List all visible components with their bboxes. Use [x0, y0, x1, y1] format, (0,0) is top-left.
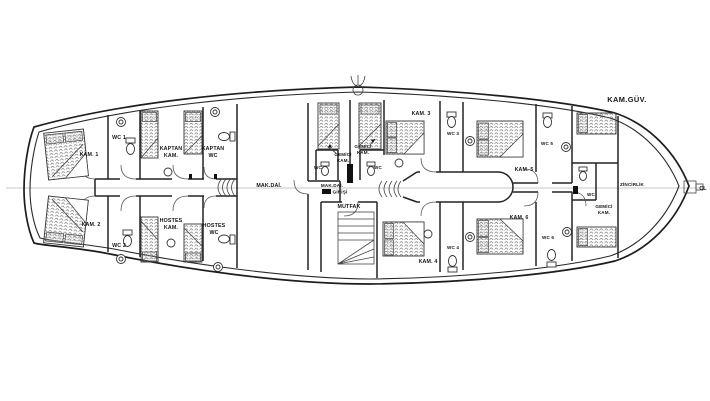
- companionway-steps-mid: [379, 181, 401, 197]
- label-wc6: WC 6: [542, 235, 554, 240]
- label-bow-wc: WC: [587, 192, 595, 197]
- toilet-icon-bow-wc: [579, 167, 587, 181]
- corridor-end-cap: [498, 172, 513, 202]
- label-kam1: KAM. 1: [80, 152, 99, 158]
- bed-gemici-port: [318, 103, 339, 149]
- label-gemici-kam-port-2: KAM.: [337, 158, 349, 163]
- label-mak-dai-giris-2: GİRİŞİ: [333, 189, 348, 195]
- label-kam-guv: KAM.GÜV.: [607, 95, 646, 104]
- bed-hostes-2: [184, 224, 202, 262]
- door-jamb: [214, 174, 217, 179]
- bed-bow-top: [577, 113, 616, 134]
- toilet-icon-kaptan-wc: [219, 132, 236, 141]
- label-mak-dai: MAK.DAİ.: [256, 182, 282, 189]
- toilet-icon-wc3: [447, 112, 456, 128]
- toilet-icon-hostes-wc: [219, 235, 236, 244]
- label-hostes-wc-2: WC: [209, 230, 218, 236]
- label-wc4: WC 4: [447, 245, 459, 250]
- label-kaptan-kam-2: KAM.: [164, 153, 179, 159]
- companionway-steps-aft: [218, 180, 235, 196]
- label-wc1: WC 1: [112, 135, 126, 141]
- label-gemici-kam-starboard-2: KAM.: [357, 150, 369, 155]
- label-wc-port: WC: [314, 165, 322, 170]
- label-gemici-kam-starboard-1: GEMİCİ: [354, 143, 371, 149]
- engine-hatch: [322, 189, 331, 194]
- label-hostes-kam-1: HOSTES: [160, 218, 183, 224]
- bed-gemici-starboard: [359, 103, 381, 149]
- bed-kam6: [477, 219, 523, 254]
- deck-plan-drawing: KAM. 1 WC 1 KAPTAN KAM. KAPTAN WC KAM. 2…: [0, 0, 710, 401]
- label-cl: CL: [699, 186, 707, 192]
- label-mak-dai-giris-1: MAK.DAİ.: [321, 182, 343, 188]
- label-wc3: WC 3: [447, 131, 459, 136]
- toilet-icon-wc6: [547, 250, 556, 268]
- yacht-deck-plan: KAM. 1 WC 1 KAPTAN KAM. KAPTAN WC KAM. 2…: [0, 0, 710, 401]
- mast-base: [347, 164, 353, 183]
- label-gemici-kam-bow-2: KAM.: [598, 210, 610, 215]
- toilet-icon-wc4: [448, 256, 457, 273]
- label-wc5: WC 5: [541, 141, 553, 146]
- label-kam6: KAM. 6: [510, 215, 529, 221]
- label-kaptan-wc-2: WC: [208, 153, 217, 159]
- toilet-icon-crew-port: [321, 162, 329, 176]
- label-mutfak: MUTFAK: [338, 204, 361, 210]
- label-kaptan-wc-1: KAPTAN: [202, 146, 225, 152]
- label-zincirlik: ZİNCİRLİK: [620, 181, 645, 187]
- label-kam4: KAM. 4: [419, 259, 438, 265]
- label-gemici-kam-port-1: GEMİCİ: [334, 151, 351, 157]
- bed-kaptan-2: [184, 111, 202, 154]
- bed-kaptan-1: [141, 111, 158, 158]
- label-wc2: WC 2: [112, 243, 126, 249]
- bed-bow-bottom: [577, 227, 616, 247]
- bed-kam3: [386, 121, 424, 154]
- bowsprit-fitting: [684, 181, 696, 193]
- label-kaptan-kam-1: KAPTAN: [160, 146, 183, 152]
- label-gemici-kam-bow-1: GEMİCİ: [595, 203, 612, 209]
- label-kam3: KAM. 3: [412, 111, 431, 117]
- toilet-icon-wc5: [543, 113, 552, 128]
- bed-hostes-1: [141, 217, 158, 262]
- toilet-icon-wc1: [126, 138, 135, 155]
- label-kam2: KAM. 2: [82, 222, 101, 228]
- bow-mast-base: [573, 186, 578, 194]
- label-hostes-kam-2: KAM.: [164, 225, 179, 231]
- door-jamb: [189, 174, 192, 179]
- bed-kam5: [477, 121, 523, 157]
- label-kam5: KAM. 5: [515, 167, 534, 173]
- galley-staircase: [338, 212, 374, 264]
- label-wc-starboard: WC: [374, 165, 382, 170]
- label-hostes-wc-1: HOSTES: [203, 223, 226, 229]
- bed-kam4: [383, 222, 424, 256]
